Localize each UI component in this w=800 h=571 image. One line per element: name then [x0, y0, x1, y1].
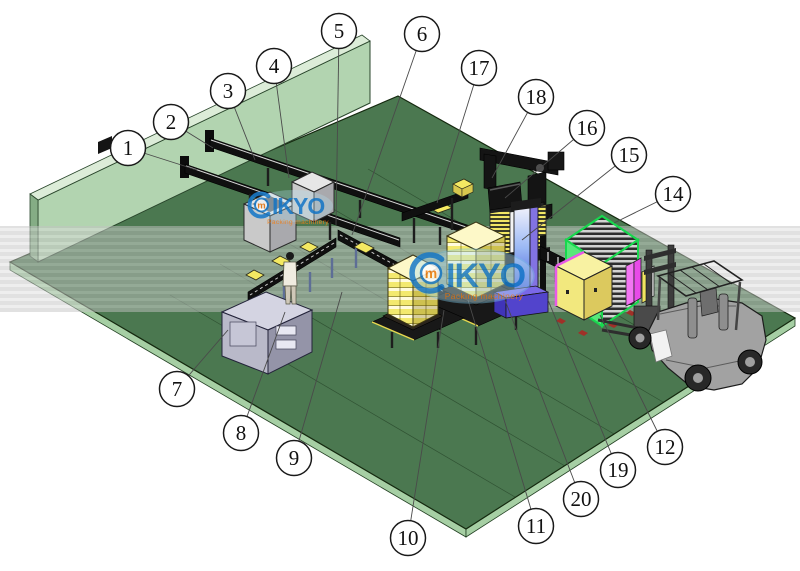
callout-10-number: 10	[398, 526, 419, 550]
callout-6-number: 6	[417, 22, 428, 46]
logo-tagline: Packing machinery	[267, 219, 329, 226]
callout-11-number: 11	[526, 514, 546, 538]
callout-12-number: 12	[655, 435, 676, 459]
palletizing-line-diagram: 12345617181615147891011201912 m IKYO Pac…	[0, 0, 800, 571]
callout-17-number: 17	[469, 56, 490, 80]
callout-18-number: 18	[526, 85, 547, 109]
callout-4-number: 4	[269, 54, 280, 78]
logo-brand-text: IKYO	[446, 257, 526, 295]
callout-8-number: 8	[236, 421, 247, 445]
callout-14-number: 14	[663, 182, 685, 206]
supply-cabinet	[556, 252, 612, 320]
callout-19-number: 19	[608, 458, 629, 482]
callout-2-number: 2	[166, 110, 177, 134]
callout-20-number: 20	[571, 487, 592, 511]
callout-3-number: 3	[223, 79, 234, 103]
callout-7-number: 7	[172, 377, 183, 401]
callout-16-number: 16	[577, 116, 598, 140]
logo-m-letter: m	[425, 265, 437, 281]
watermark-logo-large: m IKYO Packing machinery	[410, 249, 534, 303]
logo-brand-text: IKYO	[272, 193, 324, 219]
isometric-layout-svg: 12345617181615147891011201912 m IKYO Pac…	[0, 0, 800, 571]
callout-15-number: 15	[619, 143, 640, 167]
callout-9-number: 9	[289, 446, 300, 470]
logo-tagline: Packing machinery	[445, 291, 524, 301]
logo-m-letter: m	[257, 201, 265, 212]
callout-5-number: 5	[334, 19, 345, 43]
callout-1-number: 1	[123, 136, 134, 160]
